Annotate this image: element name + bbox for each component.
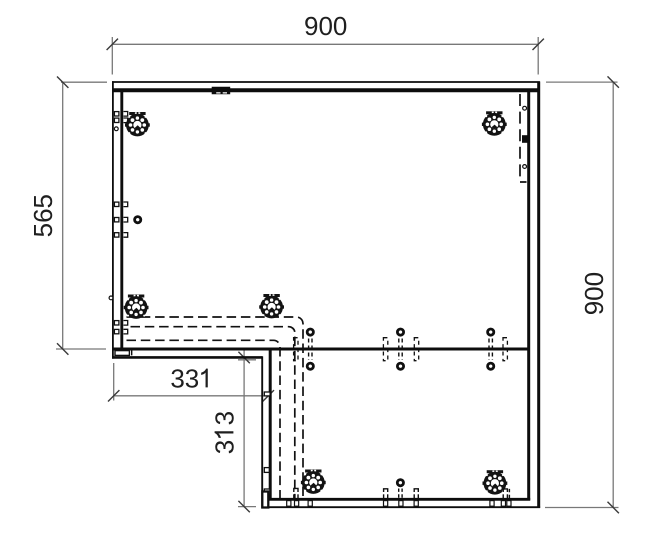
svg-text:900: 900 [579, 272, 609, 315]
svg-text:33: 33 [170, 363, 199, 393]
svg-text:565: 565 [28, 194, 58, 237]
svg-text:3: 3 [209, 440, 239, 454]
svg-text:3: 3 [209, 411, 239, 425]
svg-text:900: 900 [304, 11, 347, 41]
